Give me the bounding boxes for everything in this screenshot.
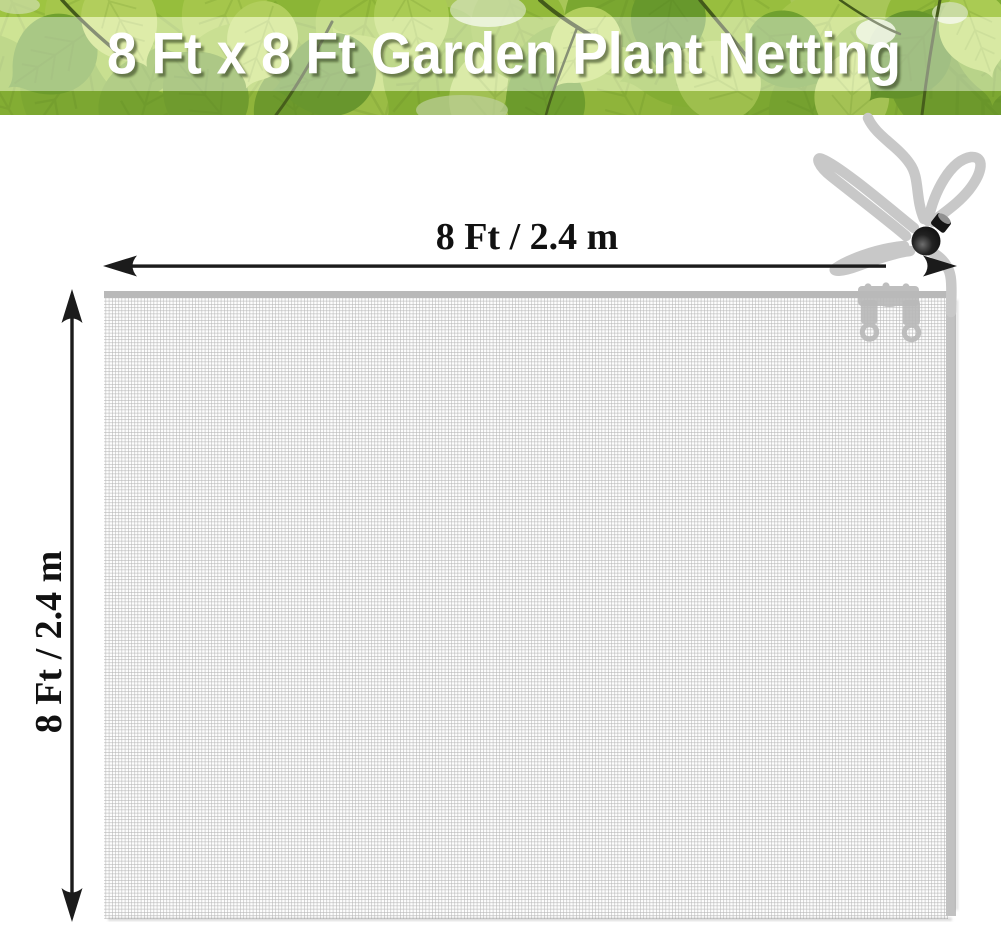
svg-text:8 Ft / 2.4 m: 8 Ft / 2.4 m (28, 551, 70, 734)
svg-text:8 Ft / 2.4 m: 8 Ft / 2.4 m (436, 216, 619, 258)
svg-text:8 Ft x 8 Ft Garden Plant Netti: 8 Ft x 8 Ft Garden Plant Netting (107, 22, 901, 87)
